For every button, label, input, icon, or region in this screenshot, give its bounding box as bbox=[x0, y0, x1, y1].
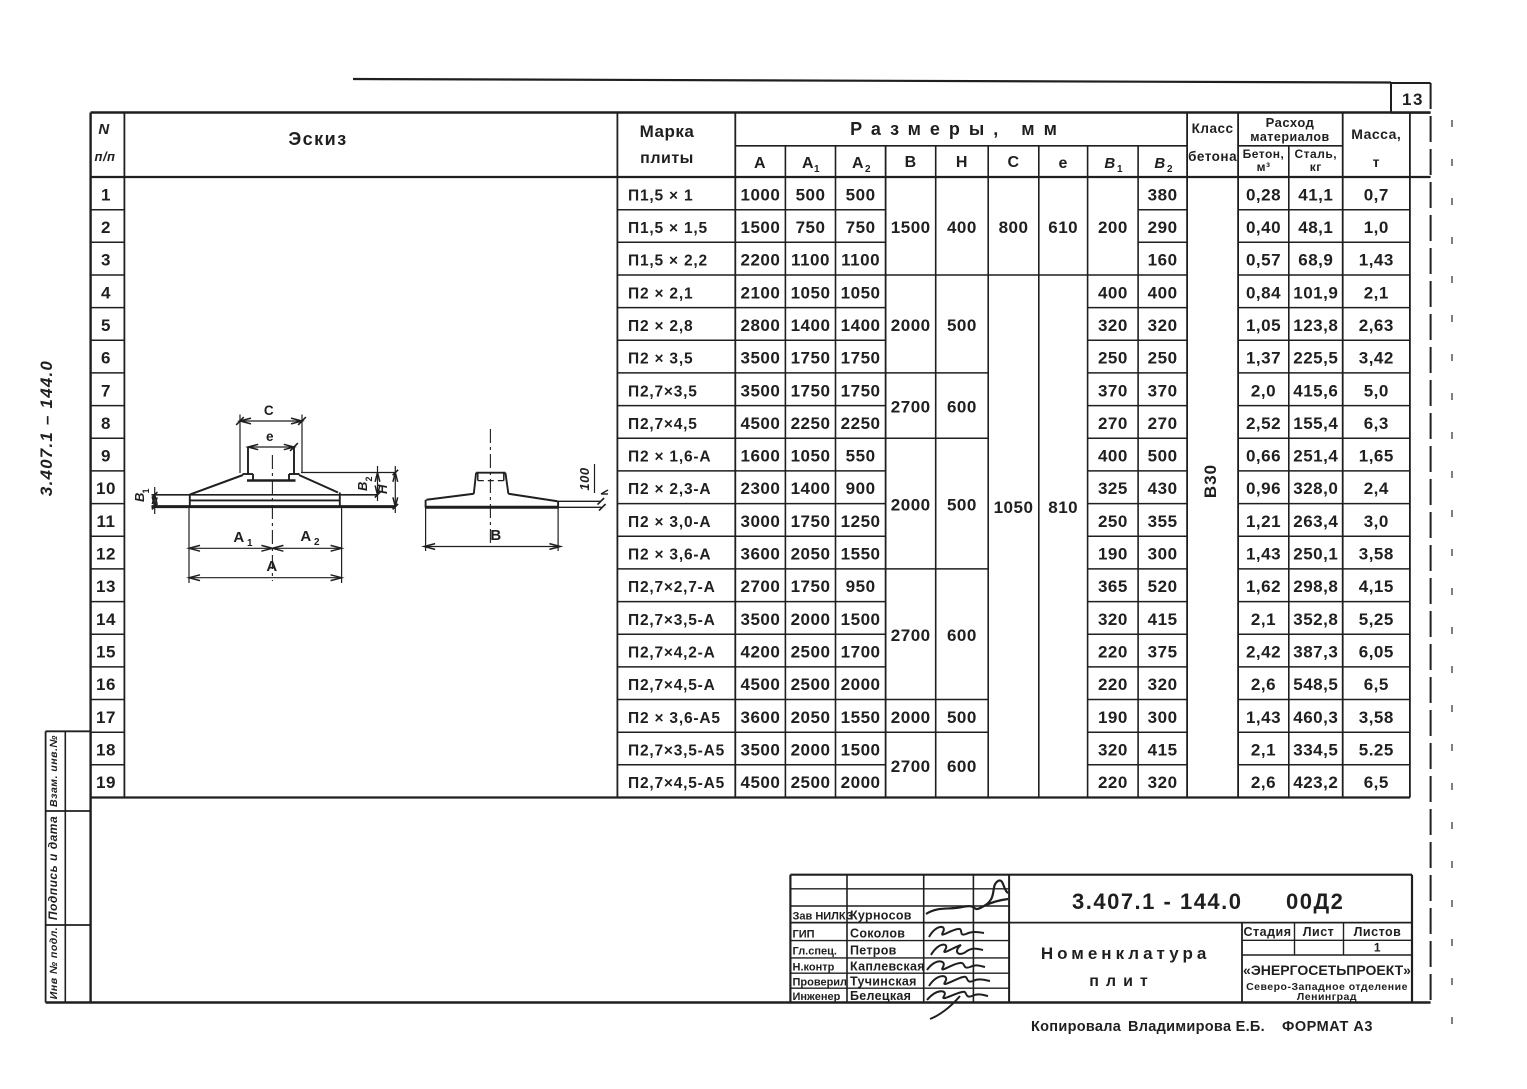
svg-text:270: 270 bbox=[1098, 414, 1128, 433]
svg-text:Взам. инв.№: Взам. инв.№ bbox=[48, 735, 60, 807]
svg-text:430: 430 bbox=[1148, 479, 1178, 498]
svg-text:10: 10 bbox=[96, 479, 116, 498]
svg-text:П1,5 × 2,2: П1,5 × 2,2 bbox=[628, 253, 708, 270]
svg-text:600: 600 bbox=[947, 626, 977, 645]
svg-text:0,66: 0,66 bbox=[1246, 447, 1281, 466]
svg-text:3600: 3600 bbox=[740, 708, 780, 727]
svg-text:Стадия: Стадия bbox=[1243, 925, 1291, 939]
svg-text:П2,7×3,5: П2,7×3,5 bbox=[628, 383, 698, 400]
svg-text:1050: 1050 bbox=[994, 498, 1034, 517]
svg-text:кг: кг bbox=[1310, 160, 1322, 174]
svg-text:C: C bbox=[1007, 154, 1019, 171]
svg-text:1500: 1500 bbox=[891, 218, 931, 237]
svg-text:1,05: 1,05 bbox=[1246, 316, 1281, 335]
svg-text:П2 × 3,6-А5: П2 × 3,6-А5 bbox=[628, 710, 721, 727]
svg-text:0,40: 0,40 bbox=[1246, 218, 1281, 237]
svg-text:Размеры, мм: Размеры, мм bbox=[850, 119, 1066, 139]
svg-text:Номенклатура: Номенклатура bbox=[1041, 944, 1211, 963]
svg-text:1,21: 1,21 bbox=[1246, 512, 1281, 531]
svg-text:Инв № подл.: Инв № подл. bbox=[48, 927, 60, 999]
svg-text:6,3: 6,3 bbox=[1364, 414, 1389, 433]
svg-text:365: 365 bbox=[1098, 577, 1128, 596]
svg-text:2800: 2800 bbox=[740, 316, 780, 335]
svg-text:3500: 3500 bbox=[740, 349, 780, 368]
svg-text:Тучинская: Тучинская bbox=[850, 975, 917, 989]
svg-text:320: 320 bbox=[1148, 316, 1178, 335]
svg-text:1750: 1750 bbox=[791, 512, 831, 531]
svg-text:160: 160 bbox=[1148, 251, 1178, 270]
svg-text:325: 325 bbox=[1098, 479, 1128, 498]
svg-text:2000: 2000 bbox=[891, 316, 931, 335]
svg-text:950: 950 bbox=[846, 577, 876, 596]
svg-text:м³: м³ bbox=[1257, 160, 1271, 174]
svg-text:1,65: 1,65 bbox=[1359, 447, 1394, 466]
svg-text:1,43: 1,43 bbox=[1246, 708, 1281, 727]
svg-text:3,58: 3,58 bbox=[1359, 545, 1394, 564]
svg-text:355: 355 bbox=[1148, 512, 1178, 531]
svg-text:500: 500 bbox=[947, 316, 977, 335]
svg-text:A: A bbox=[233, 529, 244, 546]
svg-text:Н.контр: Н.контр bbox=[793, 962, 835, 974]
svg-text:400: 400 bbox=[1148, 283, 1178, 302]
svg-text:600: 600 bbox=[947, 757, 977, 776]
svg-text:П2 × 2,8: П2 × 2,8 bbox=[628, 318, 693, 335]
svg-text:1050: 1050 bbox=[841, 283, 881, 302]
svg-text:1: 1 bbox=[1117, 164, 1123, 175]
svg-text:0,96: 0,96 bbox=[1246, 479, 1281, 498]
svg-text:900: 900 bbox=[846, 479, 876, 498]
svg-text:2250: 2250 bbox=[791, 414, 831, 433]
svg-text:2050: 2050 bbox=[791, 708, 831, 727]
svg-text:2300: 2300 bbox=[740, 479, 780, 498]
svg-text:3.407.1 - 144.0: 3.407.1 - 144.0 bbox=[1072, 889, 1243, 914]
svg-text:400: 400 bbox=[1098, 447, 1128, 466]
svg-text:2000: 2000 bbox=[891, 708, 931, 727]
svg-text:2: 2 bbox=[364, 476, 374, 481]
svg-text:Листов: Листов bbox=[1354, 925, 1402, 939]
svg-text:П2,7×3,5-А5: П2,7×3,5-А5 bbox=[628, 743, 725, 760]
svg-text:375: 375 bbox=[1148, 643, 1178, 662]
svg-text:1500: 1500 bbox=[841, 610, 881, 629]
svg-text:155,4: 155,4 bbox=[1293, 414, 1338, 433]
svg-text:2700: 2700 bbox=[891, 626, 931, 645]
svg-text:423,2: 423,2 bbox=[1293, 773, 1338, 792]
svg-text:290: 290 bbox=[1148, 218, 1178, 237]
svg-text:П2,7×2,7-А: П2,7×2,7-А bbox=[628, 579, 716, 596]
svg-text:320: 320 bbox=[1098, 316, 1128, 335]
svg-text:П2 × 2,1: П2 × 2,1 bbox=[628, 285, 693, 302]
svg-text:2,1: 2,1 bbox=[1251, 610, 1276, 629]
svg-text:1500: 1500 bbox=[740, 218, 780, 237]
svg-text:2700: 2700 bbox=[891, 398, 931, 417]
svg-text:2,6: 2,6 bbox=[1251, 675, 1276, 694]
svg-text:5,0: 5,0 bbox=[1364, 381, 1389, 400]
svg-text:298,8: 298,8 bbox=[1293, 577, 1338, 596]
svg-text:1600: 1600 bbox=[740, 447, 780, 466]
svg-text:С: С bbox=[264, 403, 274, 418]
svg-text:1750: 1750 bbox=[841, 381, 881, 400]
svg-text:352,8: 352,8 bbox=[1293, 610, 1338, 629]
svg-text:415,6: 415,6 bbox=[1293, 381, 1338, 400]
svg-text:190: 190 bbox=[1098, 708, 1128, 727]
svg-text:250: 250 bbox=[1098, 512, 1128, 531]
svg-text:2,52: 2,52 bbox=[1246, 414, 1281, 433]
svg-text:0,28: 0,28 bbox=[1246, 185, 1281, 204]
svg-text:материалов: материалов bbox=[1250, 130, 1329, 144]
svg-text:A: A bbox=[754, 155, 766, 172]
svg-text:3600: 3600 bbox=[740, 545, 780, 564]
svg-text:1100: 1100 bbox=[841, 251, 880, 270]
svg-text:123,8: 123,8 bbox=[1293, 316, 1338, 335]
svg-text:бетона: бетона bbox=[1188, 149, 1237, 164]
svg-text:B: B bbox=[1104, 155, 1115, 172]
svg-text:1400: 1400 bbox=[841, 316, 881, 335]
svg-text:Сталь,: Сталь, bbox=[1295, 147, 1338, 161]
svg-text:1,62: 1,62 bbox=[1246, 577, 1281, 596]
svg-text:3.407.1 – 144.0: 3.407.1 – 144.0 bbox=[37, 360, 56, 496]
svg-text:1750: 1750 bbox=[791, 381, 831, 400]
svg-text:48,1: 48,1 bbox=[1298, 218, 1333, 237]
svg-text:Эскиз: Эскиз bbox=[288, 129, 347, 149]
svg-text:N: N bbox=[98, 121, 110, 138]
svg-text:320: 320 bbox=[1148, 675, 1178, 694]
svg-text:300: 300 bbox=[1148, 708, 1178, 727]
svg-text:плит: плит bbox=[1089, 973, 1155, 990]
svg-text:2500: 2500 bbox=[791, 643, 831, 662]
svg-text:225,5: 225,5 bbox=[1293, 349, 1338, 368]
svg-text:1750: 1750 bbox=[791, 577, 831, 596]
svg-text:1750: 1750 bbox=[791, 349, 831, 368]
svg-text:2000: 2000 bbox=[791, 741, 831, 760]
svg-text:Каплевская: Каплевская bbox=[850, 960, 925, 974]
svg-text:Курносов: Курносов bbox=[850, 909, 912, 923]
svg-text:Зав НИЛКЗ: Зав НИЛКЗ bbox=[793, 911, 854, 923]
svg-text:11: 11 bbox=[97, 512, 116, 531]
svg-text:101,9: 101,9 bbox=[1293, 283, 1338, 302]
svg-text:5,25: 5,25 bbox=[1359, 610, 1394, 629]
svg-text:2,42: 2,42 bbox=[1246, 643, 1281, 662]
svg-text:e: e bbox=[1058, 155, 1067, 172]
svg-text:460,3: 460,3 bbox=[1293, 708, 1338, 727]
svg-text:270: 270 bbox=[1148, 414, 1178, 433]
svg-text:2000: 2000 bbox=[791, 610, 831, 629]
svg-text:2,6: 2,6 bbox=[1251, 773, 1276, 792]
svg-text:500: 500 bbox=[846, 185, 876, 204]
svg-text:2: 2 bbox=[101, 218, 111, 237]
svg-text:320: 320 bbox=[1098, 610, 1128, 629]
svg-text:2200: 2200 bbox=[740, 251, 780, 270]
svg-text:2,63: 2,63 bbox=[1359, 316, 1394, 335]
svg-text:400: 400 bbox=[1098, 283, 1128, 302]
svg-text:П1,5 × 1,5: П1,5 × 1,5 bbox=[628, 220, 708, 237]
svg-text:A: A bbox=[852, 155, 864, 172]
svg-text:3,42: 3,42 bbox=[1359, 349, 1394, 368]
svg-text:415: 415 bbox=[1148, 741, 1178, 760]
svg-text:ГИП: ГИП bbox=[793, 929, 815, 941]
svg-text:0,84: 0,84 bbox=[1246, 283, 1281, 302]
svg-text:Бетон,: Бетон, bbox=[1243, 147, 1285, 161]
svg-text:Ленинград: Ленинград bbox=[1297, 991, 1357, 1003]
svg-text:A: A bbox=[300, 528, 311, 545]
svg-text:41,1: 41,1 bbox=[1298, 185, 1333, 204]
svg-text:9: 9 bbox=[101, 447, 111, 466]
svg-text:П2,7×4,5-А5: П2,7×4,5-А5 bbox=[628, 775, 725, 792]
svg-text:0,7: 0,7 bbox=[1364, 185, 1389, 204]
svg-text:200: 200 bbox=[1098, 218, 1128, 237]
svg-text:2: 2 bbox=[314, 537, 320, 548]
svg-text:3,58: 3,58 bbox=[1359, 708, 1394, 727]
svg-text:8: 8 bbox=[101, 414, 111, 433]
svg-text:Соколов: Соколов bbox=[850, 927, 905, 941]
svg-text:17: 17 bbox=[96, 708, 116, 727]
svg-text:Лист: Лист bbox=[1303, 925, 1335, 939]
svg-text:1750: 1750 bbox=[841, 349, 881, 368]
svg-text:500: 500 bbox=[1148, 447, 1178, 466]
svg-text:П2,7×4,2-А: П2,7×4,2-А bbox=[628, 645, 716, 662]
svg-text:4: 4 bbox=[101, 283, 111, 302]
svg-text:B: B bbox=[490, 527, 501, 544]
svg-text:т: т bbox=[1373, 154, 1380, 170]
svg-text:2250: 2250 bbox=[841, 414, 881, 433]
svg-text:328,0: 328,0 bbox=[1293, 479, 1338, 498]
svg-text:2,1: 2,1 bbox=[1251, 741, 1276, 760]
svg-text:П2 × 3,0-А: П2 × 3,0-А bbox=[628, 514, 711, 531]
svg-text:14: 14 bbox=[96, 610, 116, 629]
svg-text:19: 19 bbox=[96, 773, 116, 792]
svg-text:Инженер: Инженер bbox=[793, 991, 841, 1003]
svg-text:12: 12 bbox=[96, 545, 116, 564]
svg-text:B: B bbox=[905, 154, 917, 171]
svg-text:300: 300 bbox=[1148, 545, 1178, 564]
svg-text:2000: 2000 bbox=[891, 496, 931, 515]
svg-text:2000: 2000 bbox=[841, 773, 881, 792]
svg-text:320: 320 bbox=[1098, 741, 1128, 760]
svg-text:H: H bbox=[956, 154, 968, 171]
svg-text:3: 3 bbox=[101, 251, 111, 270]
svg-text:800: 800 bbox=[999, 218, 1029, 237]
svg-text:263,4: 263,4 bbox=[1293, 512, 1338, 531]
svg-text:A: A bbox=[802, 155, 814, 172]
svg-text:15: 15 bbox=[96, 643, 116, 662]
svg-text:Проверил: Проверил bbox=[793, 977, 848, 989]
svg-text:550: 550 bbox=[846, 447, 876, 466]
svg-text:13: 13 bbox=[96, 577, 116, 596]
svg-text:548,5: 548,5 bbox=[1293, 675, 1338, 694]
svg-text:00Д2: 00Д2 bbox=[1286, 889, 1344, 914]
svg-text:1,37: 1,37 bbox=[1246, 349, 1281, 368]
svg-text:Владимирова Е.Б.: Владимирова Е.Б. bbox=[1128, 1019, 1265, 1035]
svg-text:500: 500 bbox=[947, 496, 977, 515]
svg-text:610: 610 bbox=[1048, 218, 1078, 237]
svg-text:400: 400 bbox=[947, 218, 977, 237]
svg-text:5: 5 bbox=[101, 316, 111, 335]
svg-text:4500: 4500 bbox=[740, 675, 780, 694]
svg-text:16: 16 bbox=[96, 675, 116, 694]
svg-text:1400: 1400 bbox=[791, 479, 831, 498]
svg-text:7: 7 bbox=[101, 381, 111, 400]
svg-text:2000: 2000 bbox=[841, 675, 881, 694]
svg-text:250: 250 bbox=[1148, 349, 1178, 368]
svg-text:В30: В30 bbox=[1201, 464, 1220, 498]
svg-text:2,1: 2,1 bbox=[1364, 283, 1389, 302]
svg-text:1100: 1100 bbox=[791, 251, 830, 270]
svg-text:1,0: 1,0 bbox=[1364, 218, 1389, 237]
svg-text:2: 2 bbox=[1167, 164, 1173, 175]
svg-text:«ЭНЕРГОСЕТЬПРОЕКТ»: «ЭНЕРГОСЕТЬПРОЕКТ» bbox=[1243, 962, 1411, 978]
svg-text:250,1: 250,1 bbox=[1293, 545, 1338, 564]
svg-text:320: 320 bbox=[1148, 773, 1178, 792]
svg-text:П2 × 2,3-А: П2 × 2,3-А bbox=[628, 481, 711, 498]
svg-text:334,5: 334,5 bbox=[1293, 741, 1338, 760]
svg-text:2500: 2500 bbox=[791, 675, 831, 694]
svg-text:810: 810 bbox=[1048, 498, 1078, 517]
svg-text:Белецкая: Белецкая bbox=[850, 989, 911, 1003]
svg-text:2700: 2700 bbox=[740, 577, 780, 596]
svg-text:0,57: 0,57 bbox=[1246, 251, 1281, 270]
svg-text:3000: 3000 bbox=[740, 512, 780, 531]
svg-text:370: 370 bbox=[1098, 381, 1128, 400]
svg-text:плиты: плиты bbox=[640, 150, 694, 167]
svg-text:220: 220 bbox=[1098, 675, 1128, 694]
svg-text:П2,7×3,5-А: П2,7×3,5-А bbox=[628, 612, 716, 629]
svg-text:1550: 1550 bbox=[841, 545, 881, 564]
svg-text:68,9: 68,9 bbox=[1298, 251, 1333, 270]
svg-text:Марка: Марка bbox=[640, 122, 695, 141]
svg-text:2050: 2050 bbox=[791, 545, 831, 564]
svg-text:2700: 2700 bbox=[891, 757, 931, 776]
svg-text:1250: 1250 bbox=[841, 512, 881, 531]
svg-text:П2,7×4,5-А: П2,7×4,5-А bbox=[628, 677, 716, 694]
svg-text:500: 500 bbox=[796, 185, 826, 204]
svg-text:220: 220 bbox=[1098, 773, 1128, 792]
svg-text:100: 100 bbox=[577, 467, 592, 490]
svg-text:6,5: 6,5 bbox=[1364, 773, 1389, 792]
svg-text:Класс: Класс bbox=[1192, 121, 1234, 136]
svg-text:п/п: п/п bbox=[95, 149, 116, 164]
svg-text:6,05: 6,05 bbox=[1359, 643, 1394, 662]
svg-text:3500: 3500 bbox=[740, 610, 780, 629]
svg-text:П1,5 × 1: П1,5 × 1 bbox=[628, 187, 693, 204]
svg-text:3,0: 3,0 bbox=[1364, 512, 1389, 531]
svg-text:Гл.спец.: Гл.спец. bbox=[793, 946, 837, 958]
svg-text:П2 × 3,5: П2 × 3,5 bbox=[628, 351, 693, 368]
svg-text:4500: 4500 bbox=[740, 773, 780, 792]
svg-text:П2 × 1,6-А: П2 × 1,6-А bbox=[628, 449, 711, 466]
svg-text:Копировала: Копировала bbox=[1031, 1019, 1122, 1035]
svg-text:1: 1 bbox=[141, 488, 151, 493]
svg-text:ФОРМАТ А3: ФОРМАТ А3 bbox=[1282, 1019, 1373, 1035]
svg-text:Петров: Петров bbox=[850, 944, 897, 958]
svg-text:Масса,: Масса, bbox=[1351, 126, 1401, 142]
svg-text:1500: 1500 bbox=[841, 741, 881, 760]
svg-text:5.25: 5.25 bbox=[1359, 741, 1394, 760]
svg-text:18: 18 bbox=[96, 741, 116, 760]
svg-text:220: 220 bbox=[1098, 643, 1128, 662]
svg-text:1,43: 1,43 bbox=[1246, 545, 1281, 564]
svg-text:250: 250 bbox=[1098, 349, 1128, 368]
svg-text:2: 2 bbox=[865, 164, 871, 175]
svg-text:1: 1 bbox=[247, 538, 253, 549]
svg-text:750: 750 bbox=[796, 218, 826, 237]
svg-text:1550: 1550 bbox=[841, 708, 881, 727]
svg-text:3500: 3500 bbox=[740, 381, 780, 400]
svg-text:1050: 1050 bbox=[791, 283, 831, 302]
svg-text:387,3: 387,3 bbox=[1293, 643, 1338, 662]
svg-text:1: 1 bbox=[1374, 941, 1381, 955]
svg-text:B: B bbox=[1154, 155, 1165, 172]
svg-text:4500: 4500 bbox=[740, 414, 780, 433]
svg-text:A: A bbox=[266, 558, 277, 575]
svg-text:520: 520 bbox=[1148, 577, 1178, 596]
svg-text:380: 380 bbox=[1148, 185, 1178, 204]
svg-text:2,0: 2,0 bbox=[1251, 381, 1276, 400]
svg-text:4200: 4200 bbox=[740, 643, 780, 662]
svg-text:13: 13 bbox=[1402, 90, 1424, 109]
svg-text:1000: 1000 bbox=[740, 185, 780, 204]
svg-text:П2,7×4,5: П2,7×4,5 bbox=[628, 416, 698, 433]
svg-text:1700: 1700 bbox=[841, 643, 881, 662]
svg-text:H: H bbox=[375, 484, 390, 494]
svg-text:1,43: 1,43 bbox=[1359, 251, 1394, 270]
svg-text:6: 6 bbox=[101, 349, 111, 368]
svg-text:251,4: 251,4 bbox=[1293, 447, 1338, 466]
svg-text:Расход: Расход bbox=[1266, 115, 1315, 130]
svg-text:Подпись и дата: Подпись и дата bbox=[46, 816, 60, 920]
svg-text:750: 750 bbox=[846, 218, 876, 237]
svg-text:1: 1 bbox=[101, 185, 111, 204]
svg-text:2,4: 2,4 bbox=[1364, 479, 1389, 498]
svg-text:4,15: 4,15 bbox=[1359, 577, 1394, 596]
svg-text:500: 500 bbox=[947, 708, 977, 727]
svg-text:2100: 2100 bbox=[740, 283, 780, 302]
svg-text:190: 190 bbox=[1098, 545, 1128, 564]
svg-text:2500: 2500 bbox=[791, 773, 831, 792]
svg-text:B: B bbox=[355, 481, 370, 491]
svg-text:1050: 1050 bbox=[791, 447, 831, 466]
svg-text:1: 1 bbox=[814, 164, 820, 175]
svg-text:3500: 3500 bbox=[740, 741, 780, 760]
svg-text:П2 × 3,6-А: П2 × 3,6-А bbox=[628, 547, 711, 564]
svg-text:e: e bbox=[266, 429, 274, 444]
svg-text:1400: 1400 bbox=[791, 316, 831, 335]
svg-text:600: 600 bbox=[947, 398, 977, 417]
svg-text:415: 415 bbox=[1148, 610, 1178, 629]
svg-text:370: 370 bbox=[1148, 381, 1178, 400]
svg-text:6,5: 6,5 bbox=[1364, 675, 1389, 694]
